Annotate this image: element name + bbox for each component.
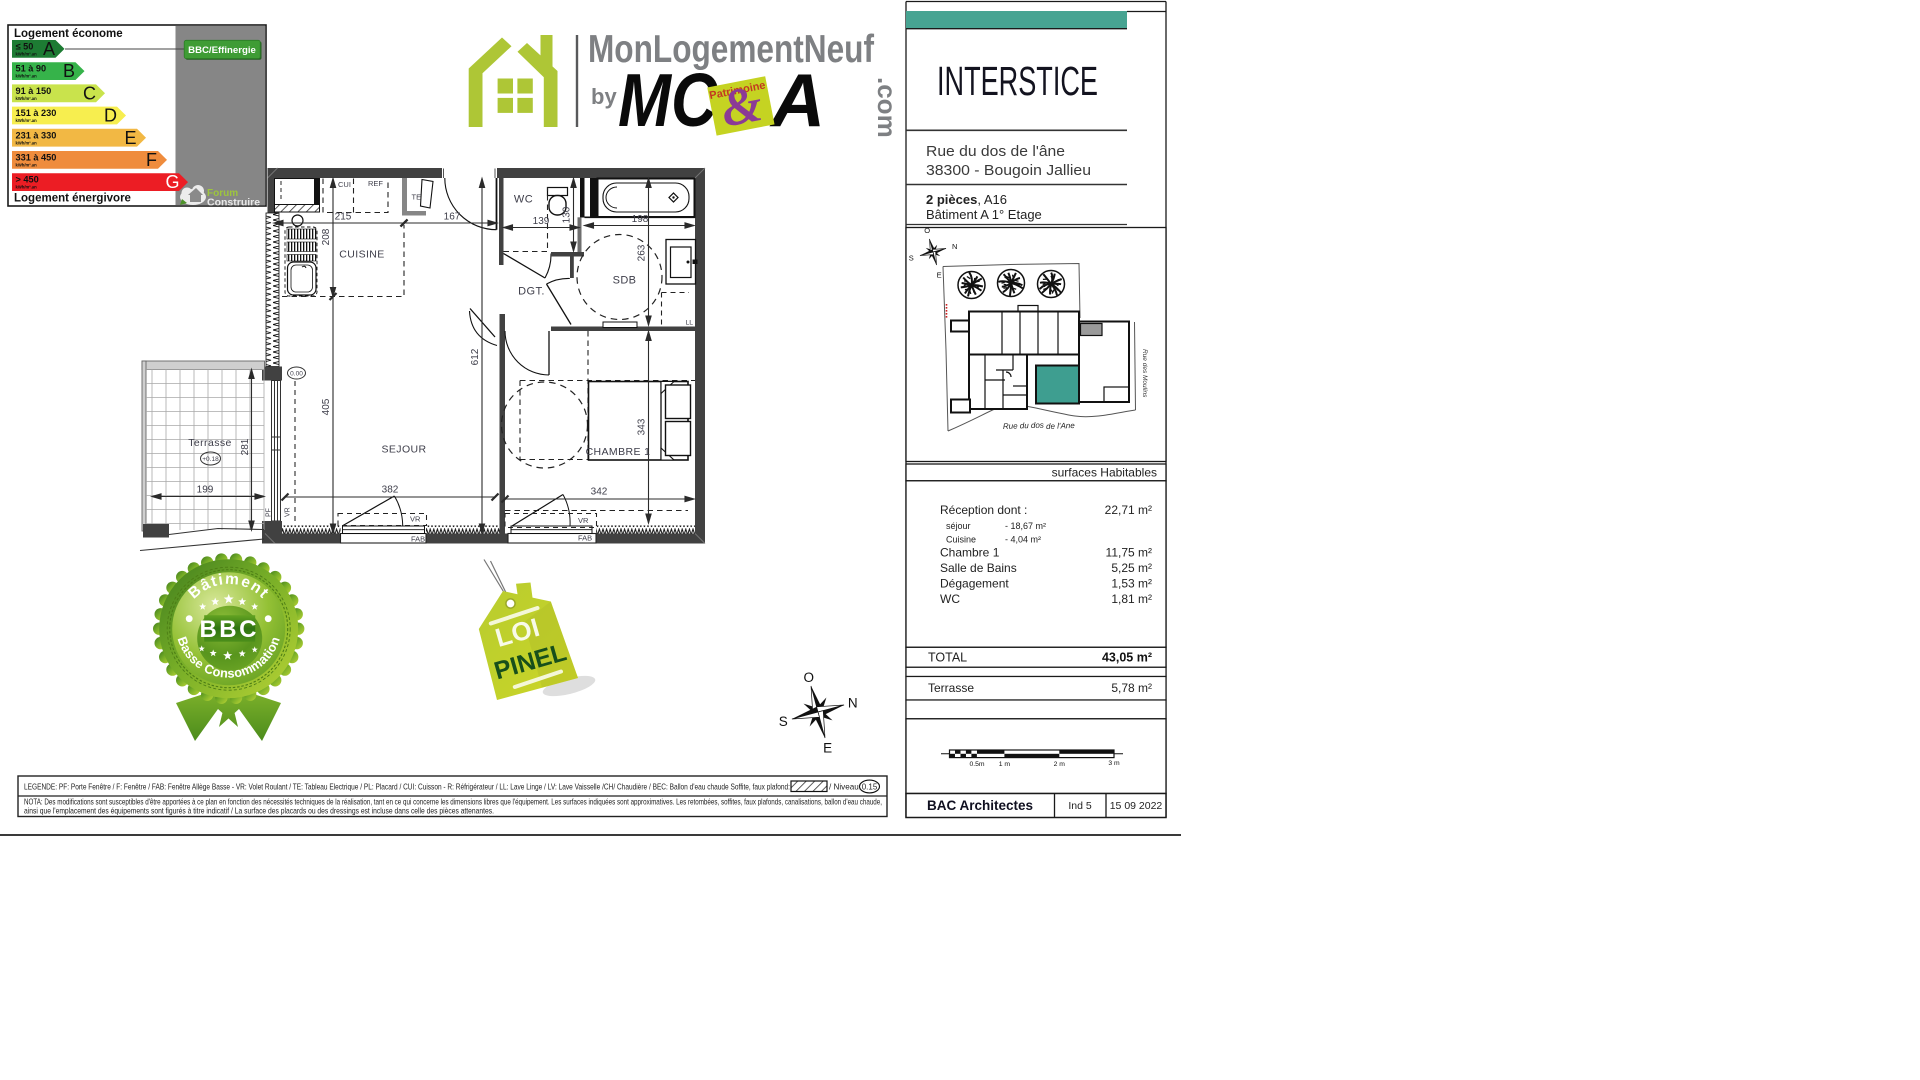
svg-text:A: A xyxy=(769,58,825,142)
svg-text:Rue des Moulins: Rue des Moulins xyxy=(1141,349,1148,398)
svg-text:Réception dont :: Réception dont : xyxy=(940,503,1027,517)
svg-text:> 450: > 450 xyxy=(16,175,39,185)
svg-text:kWh/m².an: kWh/m².an xyxy=(16,96,38,101)
svg-text:O: O xyxy=(803,670,814,685)
svg-text:C: C xyxy=(83,83,96,103)
svg-text:- 18,67 m²: - 18,67 m² xyxy=(1005,521,1046,531)
svg-text:199: 199 xyxy=(197,485,214,496)
svg-text:167: 167 xyxy=(444,212,461,223)
svg-text:91 à 150: 91 à 150 xyxy=(16,86,52,96)
svg-text:1,81 m²: 1,81 m² xyxy=(1111,592,1152,606)
svg-text:WC: WC xyxy=(514,194,533,206)
svg-text:- 4,04 m²: - 4,04 m² xyxy=(1005,535,1041,545)
svg-text:151 à 230: 151 à 230 xyxy=(16,108,57,118)
svg-text:kWh/m².an: kWh/m².an xyxy=(16,163,38,168)
svg-text:263: 263 xyxy=(637,244,648,261)
svg-text:S: S xyxy=(779,714,788,729)
svg-text:0.5m: 0.5m xyxy=(969,761,984,768)
svg-text:INTERSTICE: INTERSTICE xyxy=(937,58,1098,104)
svg-text:Chambre 1: Chambre 1 xyxy=(940,546,1000,560)
svg-text:198: 198 xyxy=(632,214,649,225)
svg-text:VR: VR xyxy=(285,507,292,517)
svg-text:kWh/m².an: kWh/m².an xyxy=(16,140,38,145)
svg-text:BBC/Effinergie: BBC/Effinergie xyxy=(188,45,256,56)
svg-text:≤ 50: ≤ 50 xyxy=(16,42,34,52)
svg-text:SDB: SDB xyxy=(613,275,637,287)
svg-text:LEGENDE: PF: Porte Fenêtre / F: LEGENDE: PF: Porte Fenêtre / F: Fenêtre … xyxy=(24,782,790,792)
svg-text:Dégagement: Dégagement xyxy=(940,577,1009,591)
svg-text:A: A xyxy=(43,39,55,59)
svg-text:TE: TE xyxy=(412,193,422,202)
svg-text:N: N xyxy=(952,242,957,251)
svg-text:Construire: Construire xyxy=(207,197,260,209)
svg-text:DGT.: DGT. xyxy=(518,286,545,298)
svg-text:BAC Architectes: BAC Architectes xyxy=(927,798,1033,813)
svg-text:612: 612 xyxy=(470,348,481,365)
svg-text:FAB: FAB xyxy=(411,535,425,544)
svg-text:N: N xyxy=(848,695,858,710)
svg-text:Logement énergivore: Logement énergivore xyxy=(14,193,131,205)
svg-text:0.00: 0.00 xyxy=(290,371,303,378)
svg-text:139: 139 xyxy=(533,216,550,227)
svg-text:E: E xyxy=(823,741,832,756)
svg-text:231 à 330: 231 à 330 xyxy=(16,130,57,140)
svg-text:B: B xyxy=(63,61,75,81)
svg-text:.com: .com xyxy=(872,77,902,138)
svg-text:G: G xyxy=(165,172,179,192)
svg-text:1,53 m²: 1,53 m² xyxy=(1111,577,1152,591)
svg-text:kWh/m².an: kWh/m².an xyxy=(16,118,38,123)
svg-text:38300 - Bougoin Jallieu: 38300 - Bougoin Jallieu xyxy=(926,163,1091,179)
svg-text:22,71 m²: 22,71 m² xyxy=(1105,503,1152,517)
svg-text:215: 215 xyxy=(335,212,352,223)
svg-text:331 à 450: 331 à 450 xyxy=(16,153,57,163)
svg-text:CUI: CUI xyxy=(338,180,351,189)
svg-text:2 pièces, A16: 2 pièces, A16 xyxy=(926,192,1007,207)
svg-text:F: F xyxy=(146,150,157,170)
svg-text:kWh/m².an: kWh/m².an xyxy=(16,74,38,79)
svg-text:séjour: séjour xyxy=(946,521,971,531)
svg-text:405: 405 xyxy=(321,398,332,415)
svg-text:130: 130 xyxy=(562,206,573,223)
svg-text:343: 343 xyxy=(637,418,648,435)
svg-text:MC: MC xyxy=(618,58,719,142)
svg-text:PF: PF xyxy=(266,508,273,517)
svg-text:kWh/m².an: kWh/m².an xyxy=(16,185,38,190)
svg-text:VR: VR xyxy=(410,515,421,524)
svg-text:382: 382 xyxy=(382,485,399,496)
svg-text:15 09 2022: 15 09 2022 xyxy=(1110,800,1163,812)
svg-text:342: 342 xyxy=(591,487,608,498)
svg-text:kWh/m².an: kWh/m².an xyxy=(16,52,38,57)
svg-text:51 à 90: 51 à 90 xyxy=(16,64,47,74)
svg-text:Logement économe: Logement économe xyxy=(14,28,123,40)
svg-text:Ind 5: Ind 5 xyxy=(1068,800,1092,812)
svg-text:Terrasse: Terrasse xyxy=(188,437,231,449)
svg-text:Salle de Bains: Salle de Bains xyxy=(940,561,1017,575)
svg-text:O: O xyxy=(924,226,930,235)
svg-text:REF: REF xyxy=(368,179,383,188)
svg-text:CUISINE: CUISINE xyxy=(339,249,384,261)
svg-text:Cuisine: Cuisine xyxy=(946,535,976,545)
svg-text:SEJOUR: SEJOUR xyxy=(382,444,427,456)
svg-text:3 m: 3 m xyxy=(1108,760,1120,767)
svg-text:surfaces Habitables: surfaces Habitables xyxy=(1052,466,1157,480)
svg-text:CHAMBRE 1: CHAMBRE 1 xyxy=(586,446,651,458)
svg-text:Rue du dos de l'âne: Rue du dos de l'âne xyxy=(926,144,1065,160)
svg-text:LL: LL xyxy=(685,320,693,327)
svg-text:11,75 m²: 11,75 m² xyxy=(1106,546,1152,560)
svg-text:0.15: 0.15 xyxy=(862,782,878,791)
svg-text:FAB: FAB xyxy=(578,534,592,543)
svg-text:BBC: BBC xyxy=(199,616,259,643)
svg-text:1 m: 1 m xyxy=(999,761,1011,768)
svg-text:+0.18: +0.18 xyxy=(202,456,219,463)
svg-text:43,05 m²: 43,05 m² xyxy=(1102,651,1152,665)
svg-text:ainsi que l'emplacement des éq: ainsi que l'emplacement des équipements … xyxy=(24,807,494,816)
svg-text:Terrasse: Terrasse xyxy=(928,681,974,695)
svg-text:Bâtiment A 1° Etage: Bâtiment A 1° Etage xyxy=(926,207,1042,222)
svg-text:D: D xyxy=(104,106,117,126)
svg-text:208: 208 xyxy=(321,228,332,245)
svg-text:S: S xyxy=(909,253,914,262)
svg-text:281: 281 xyxy=(240,438,251,455)
svg-text:2 m: 2 m xyxy=(1054,761,1066,768)
svg-text:WC: WC xyxy=(940,592,960,606)
svg-text:TOTAL: TOTAL xyxy=(928,651,967,665)
svg-text:by: by xyxy=(591,84,617,109)
svg-text:E: E xyxy=(124,128,136,148)
svg-text:NOTA: Des modifications sont s: NOTA: Des modifications sont susceptible… xyxy=(24,798,882,807)
svg-text:5,78 m²: 5,78 m² xyxy=(1111,681,1152,695)
svg-text:/ Niveau:: / Niveau: xyxy=(829,783,861,792)
svg-text:E: E xyxy=(937,270,942,279)
svg-text:5,25 m²: 5,25 m² xyxy=(1111,561,1152,575)
svg-text:VR: VR xyxy=(578,516,589,525)
